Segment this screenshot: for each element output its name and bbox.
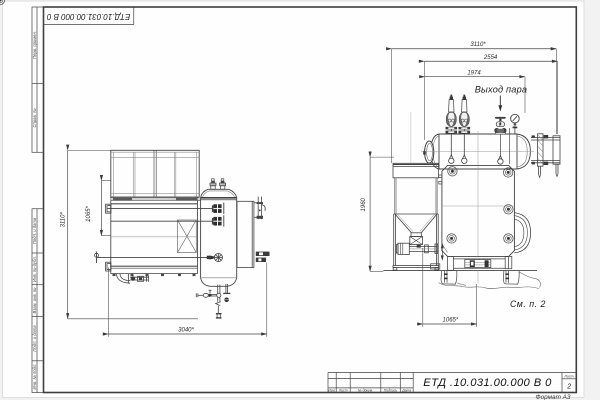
- svg-text:Формат А3: Формат А3: [536, 394, 571, 400]
- svg-text:Выход пара: Выход пара: [475, 84, 528, 94]
- svg-text:ЕТД .10.031.00.000 В 0: ЕТД .10.031.00.000 В 0: [423, 377, 552, 389]
- svg-text:Инв. № подл.: Инв. № подл.: [32, 364, 37, 390]
- svg-text:1974: 1974: [467, 70, 481, 76]
- svg-text:3110*: 3110*: [60, 212, 66, 228]
- svg-text:2: 2: [566, 383, 571, 390]
- svg-text:№ докум.: № докум.: [358, 388, 373, 392]
- svg-text:Инв. № дубл.: Инв. № дубл.: [32, 256, 37, 282]
- svg-text:Подп. и дата: Подп. и дата: [32, 217, 37, 244]
- svg-text:1960: 1960: [361, 197, 367, 211]
- svg-text:Перв. примен.: Перв. примен.: [32, 31, 37, 59]
- svg-text:2554: 2554: [483, 55, 498, 61]
- svg-text:1065*: 1065*: [86, 205, 92, 221]
- svg-text:3110*: 3110*: [470, 42, 486, 48]
- svg-text:3040*: 3040*: [178, 327, 194, 333]
- svg-text:Взам. инв. №: Взам. инв. №: [32, 287, 37, 313]
- svg-text:Дата: Дата: [401, 388, 411, 392]
- svg-text:1065*: 1065*: [443, 318, 459, 324]
- svg-text:Изм.: Изм.: [328, 388, 335, 392]
- svg-text:См. п. 2: См. п. 2: [510, 299, 546, 309]
- svg-text:Подпись: Подпись: [384, 388, 398, 392]
- svg-text:Лист: Лист: [563, 375, 573, 379]
- svg-text:Лист: Лист: [338, 388, 348, 392]
- svg-text:ЕТД.10.031.00.000 В 0: ЕТД.10.031.00.000 В 0: [46, 12, 130, 21]
- svg-text:Справ. №: Справ. №: [32, 108, 37, 127]
- svg-text:Подп. и дата: Подп. и дата: [32, 325, 37, 352]
